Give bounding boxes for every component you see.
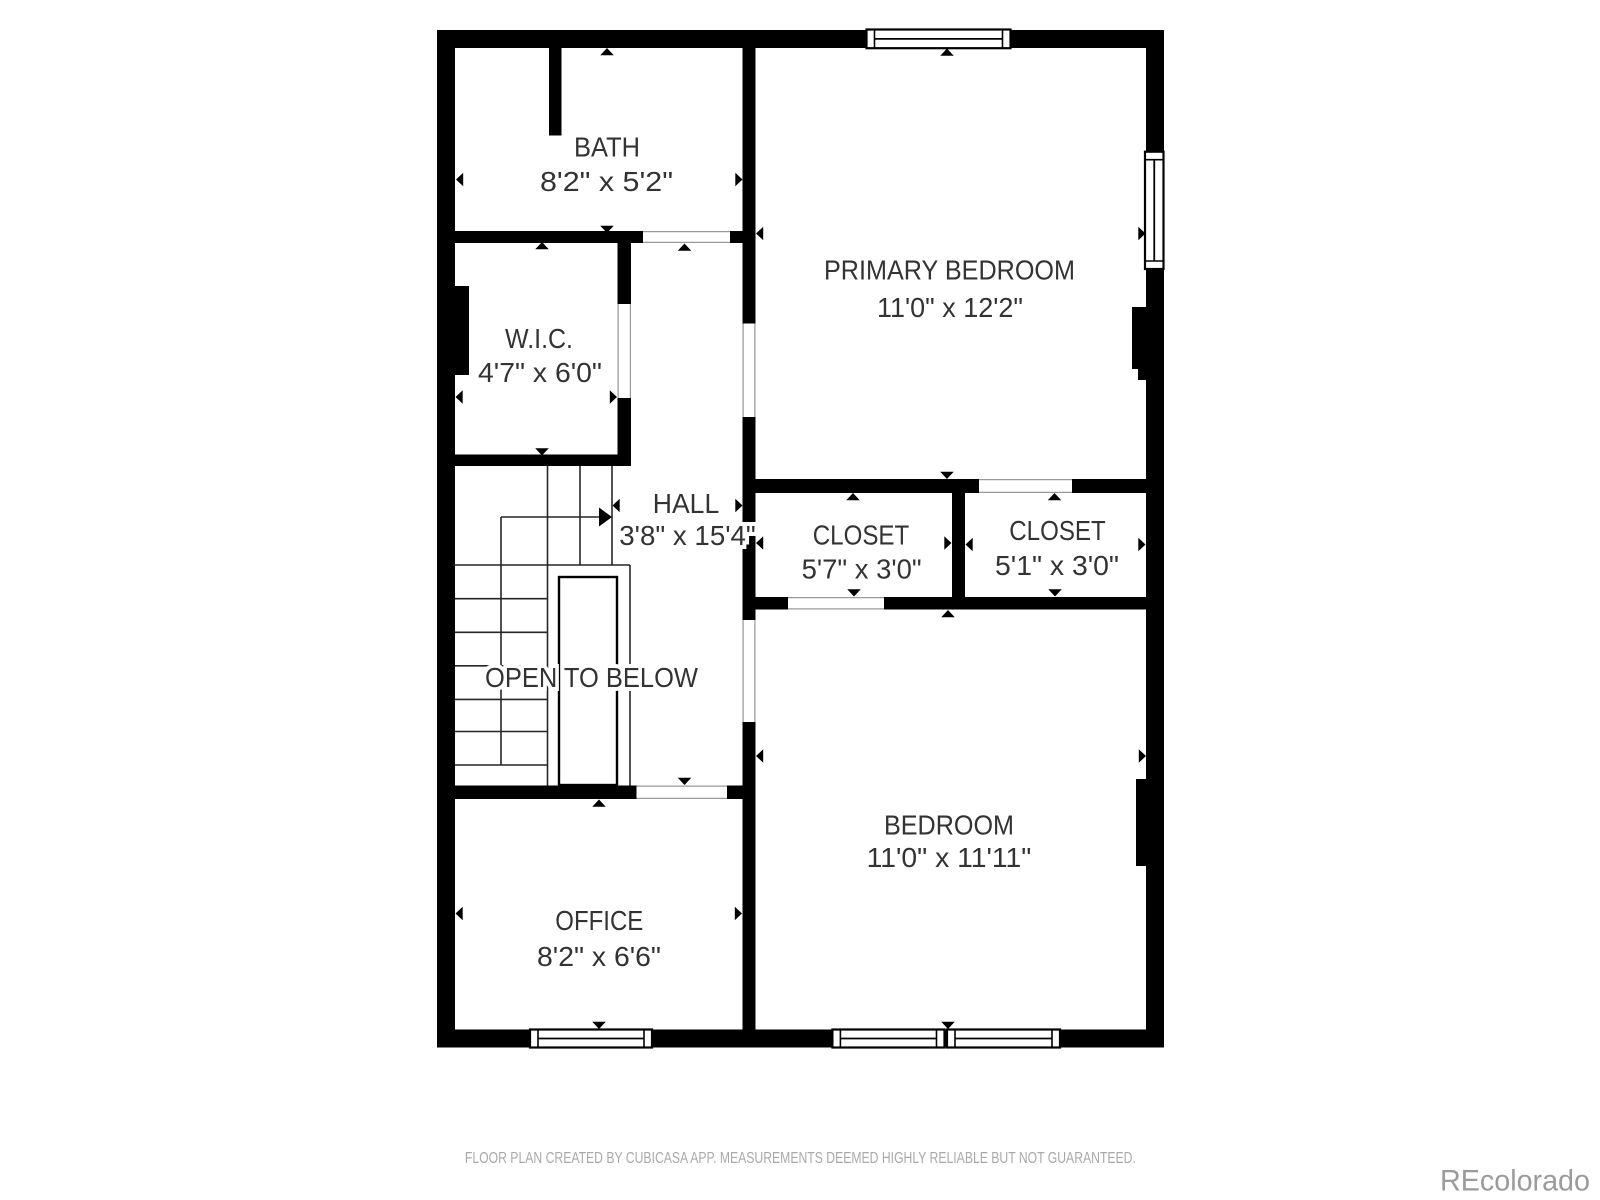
- svg-text:OFFICE: OFFICE: [555, 905, 643, 936]
- svg-text:FLOOR PLAN CREATED BY CUBICASA: FLOOR PLAN CREATED BY CUBICASA APP. MEAS…: [465, 1150, 1136, 1167]
- svg-text:PRIMARY BEDROOM: PRIMARY BEDROOM: [824, 255, 1075, 286]
- svg-text:REcolorado: REcolorado: [1440, 1165, 1590, 1198]
- svg-text:11'0" x 11'11": 11'0" x 11'11": [867, 842, 1032, 873]
- svg-text:5'7" x 3'0": 5'7" x 3'0": [802, 554, 922, 585]
- svg-text:CLOSET: CLOSET: [1009, 515, 1106, 546]
- svg-text:4'7" x 6'0": 4'7" x 6'0": [478, 357, 602, 388]
- svg-text:8'2" x 5'2": 8'2" x 5'2": [540, 166, 673, 197]
- svg-text:HALL: HALL: [653, 488, 720, 519]
- svg-text:8'2" x 6'6": 8'2" x 6'6": [537, 941, 661, 972]
- svg-text:11'0" x 12'2": 11'0" x 12'2": [877, 292, 1023, 323]
- svg-text:CLOSET: CLOSET: [813, 519, 910, 550]
- svg-text:OPEN TO BELOW: OPEN TO BELOW: [485, 662, 699, 693]
- svg-text:BEDROOM: BEDROOM: [884, 810, 1014, 841]
- svg-text:5'1" x 3'0": 5'1" x 3'0": [995, 550, 1119, 581]
- svg-text:BATH: BATH: [574, 132, 640, 163]
- svg-text:W.I.C.: W.I.C.: [505, 323, 573, 354]
- svg-text:3'8" x 15'4": 3'8" x 15'4": [619, 520, 756, 551]
